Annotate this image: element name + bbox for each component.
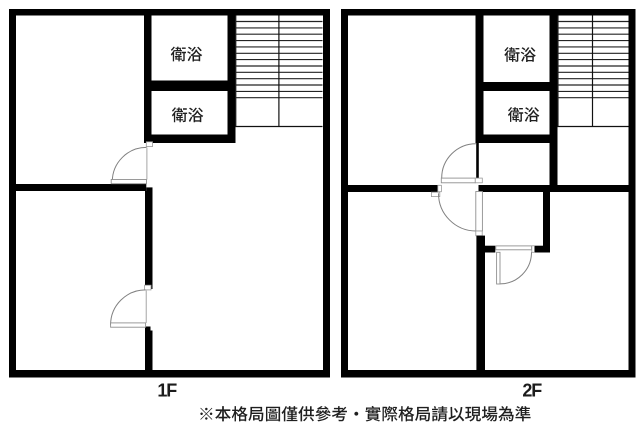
- svg-text:2F: 2F: [522, 381, 542, 401]
- svg-text:1F: 1F: [157, 381, 177, 401]
